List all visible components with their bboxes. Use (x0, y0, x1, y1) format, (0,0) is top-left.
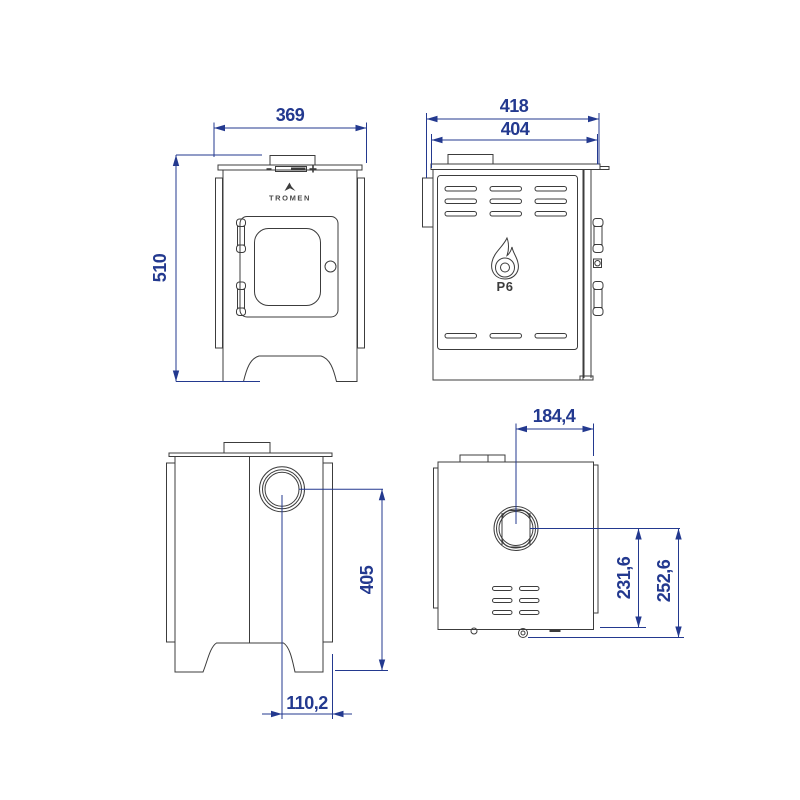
door-hinge-top (237, 219, 246, 253)
back-top-plate (169, 453, 332, 457)
dim-label-404: 404 (501, 119, 530, 139)
dim-label-418: 418 (500, 96, 529, 116)
back-right-wing-panel (323, 463, 333, 642)
dim-label-252-6: 252,6 (654, 559, 674, 602)
front-top-plate (218, 165, 362, 170)
plus-icon (310, 166, 317, 173)
top-flue-collar-stub (460, 455, 505, 462)
side-panel (438, 176, 578, 350)
side-hinge-bottom (593, 282, 603, 316)
dim-top-flue-offset: 184,4 (516, 406, 594, 524)
top-left-wing-edge (434, 468, 439, 608)
front-left-wing-panel (216, 178, 223, 348)
dim-label-510: 510 (150, 253, 170, 282)
dim-label-184-4: 184,4 (533, 406, 576, 426)
back-left-wing-panel (167, 463, 176, 642)
rear-flue-shield (423, 178, 434, 227)
edge-fitting-tab (550, 630, 561, 633)
side-hinge-top (593, 219, 603, 253)
top-rear-vents (493, 587, 540, 615)
side-door-edge (580, 170, 593, 381)
model-logo: P6 (492, 238, 519, 294)
stove-dimension-drawing: TROMEN 369 (0, 0, 800, 800)
dim-front-width: 369 (214, 105, 367, 163)
slider-knob (291, 168, 306, 171)
side-top-vents (445, 187, 567, 217)
air-control-slider (267, 166, 317, 173)
technical-drawing-page: TROMEN 369 (0, 0, 800, 800)
dim-label-110-2: 110,2 (286, 693, 328, 713)
side-door-latch (594, 259, 602, 268)
front-view: TROMEN 369 (150, 105, 367, 382)
door-knob (325, 261, 336, 272)
side-bottom-vents (445, 334, 567, 339)
side-top-plate (431, 164, 600, 170)
back-flue-collar-stub (224, 443, 270, 454)
top-view: 184,4 231,6 252,6 (434, 406, 685, 638)
flame-ring-inner (501, 263, 510, 272)
dim-front-height: 510 (150, 155, 262, 382)
front-door (237, 217, 339, 318)
side-flue-collar (448, 155, 493, 165)
door-window (255, 229, 321, 306)
dim-back-flue-offset: 110,2 (262, 495, 352, 719)
dim-back-flue-height: 405 (299, 489, 388, 670)
dim-label-369: 369 (276, 105, 305, 125)
brand-logo-text: TROMEN (269, 194, 311, 203)
dim-label-231-6: 231,6 (614, 556, 634, 599)
side-plate-lip (600, 167, 609, 170)
dim-label-405: 405 (357, 565, 377, 594)
back-view: 405 110,2 (167, 443, 389, 720)
front-flue-collar (270, 156, 315, 166)
brand-logo: TROMEN (269, 183, 311, 203)
edge-fitting-small (471, 628, 477, 634)
side-body (433, 170, 583, 381)
front-right-wing-panel (358, 178, 365, 348)
flame-mountain-icon (285, 183, 296, 192)
door-hinge-bottom (237, 282, 246, 316)
dim-top-flue-to-floor: 252,6 (528, 529, 684, 638)
dim-side-depth-body: 404 (432, 119, 598, 168)
side-view: P6 418 (423, 96, 610, 380)
flame-ring-outer (496, 258, 515, 277)
model-logo-text: P6 (497, 279, 514, 294)
top-right-wing-edge (594, 465, 599, 613)
